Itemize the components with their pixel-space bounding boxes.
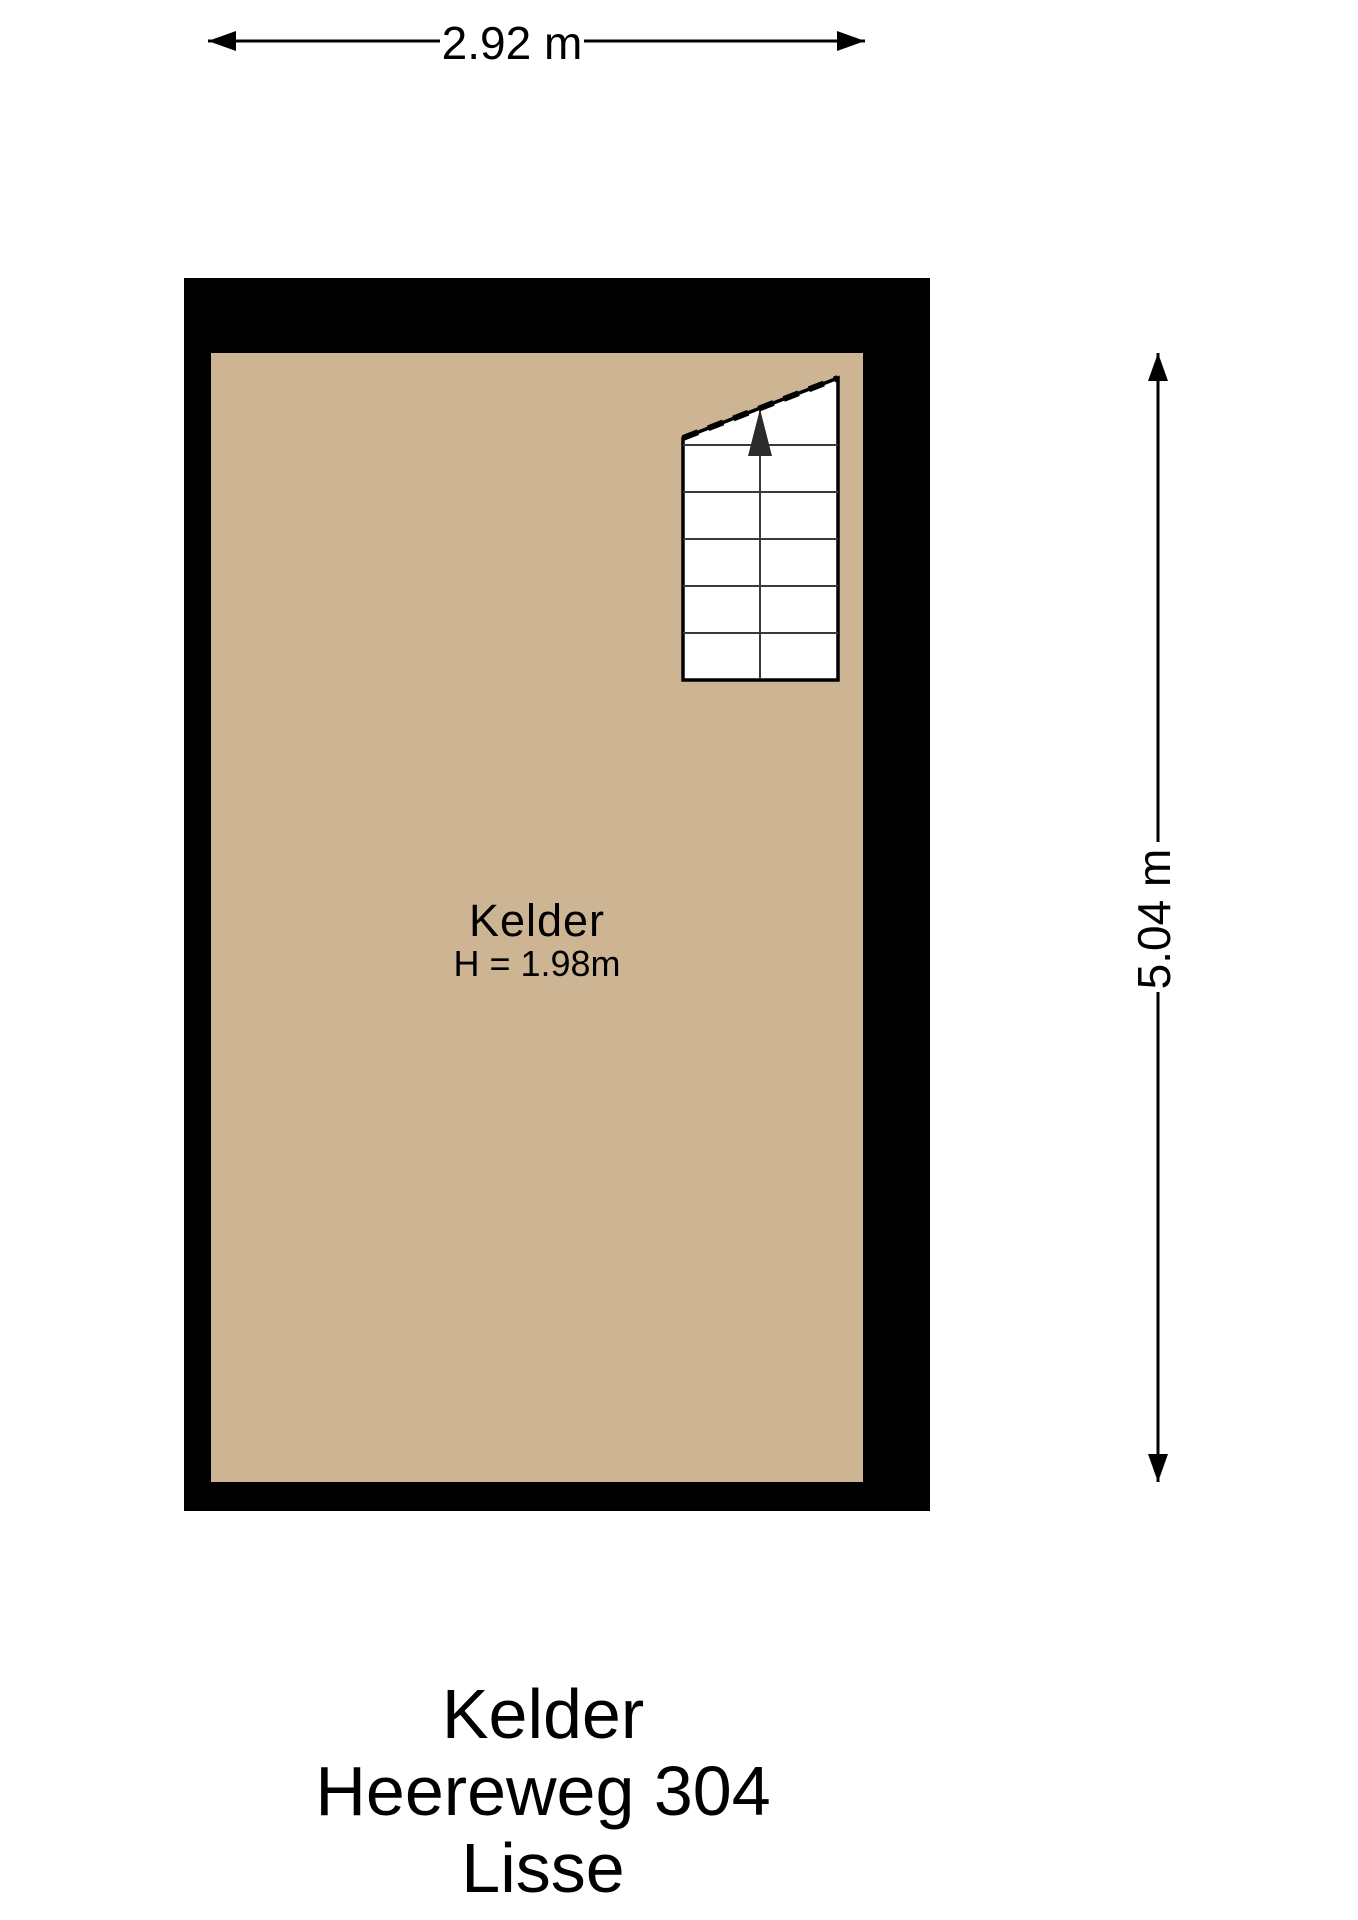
dim-arrow-left-icon: [208, 31, 236, 51]
dim-arrow-down-icon: [1148, 1454, 1168, 1482]
title-line-city: Lisse: [315, 1830, 770, 1907]
room-height-label: H = 1.98m: [453, 943, 620, 985]
floorplan-page: 2.92 m 5.04 m Kelder H = 1.98m Kelder He…: [0, 0, 1358, 1920]
title-line-address: Heereweg 304: [315, 1753, 770, 1830]
title-block: Kelder Heereweg 304 Lisse: [315, 1676, 770, 1907]
dim-arrow-right-icon: [837, 31, 865, 51]
height-dimension-label: 5.04 m: [1127, 849, 1181, 990]
title-line-room: Kelder: [315, 1676, 770, 1753]
width-dimension-label: 2.92 m: [442, 16, 583, 70]
dim-arrow-up-icon: [1148, 353, 1168, 381]
room-name-label: Kelder: [469, 895, 605, 947]
